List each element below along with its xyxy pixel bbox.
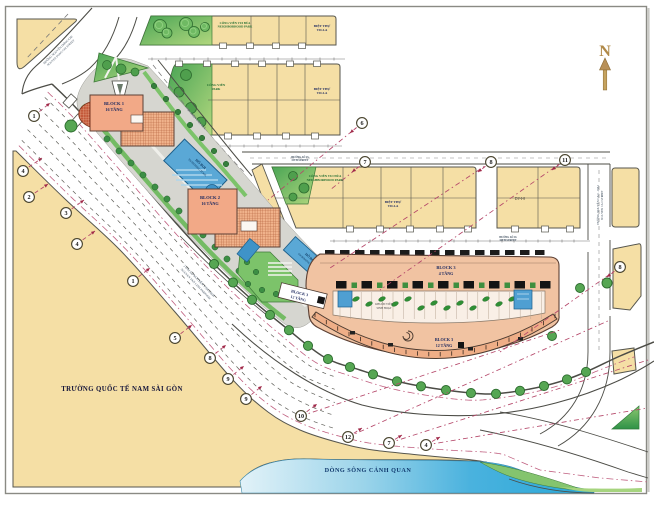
svg-text:9: 9 xyxy=(226,376,229,383)
svg-text:DV-I-8: DV-I-8 xyxy=(515,197,525,201)
svg-text:5: 5 xyxy=(173,335,176,342)
svg-text:KHUÔN VIÊN: KHUÔN VIÊN xyxy=(375,303,392,306)
svg-text:VILLA: VILLA xyxy=(388,204,399,208)
svg-text:10: 10 xyxy=(298,413,304,420)
svg-text:PARK: PARK xyxy=(212,87,221,91)
svg-text:6: 6 xyxy=(360,120,363,127)
svg-text:3: 3 xyxy=(64,210,67,217)
svg-text:8: 8 xyxy=(489,159,492,166)
svg-text:4: 4 xyxy=(75,241,78,248)
svg-text:NGUYEN CAO STREET: NGUYEN CAO STREET xyxy=(601,190,604,220)
svg-text:9: 9 xyxy=(244,396,247,403)
svg-text:7: 7 xyxy=(363,159,366,166)
svg-text:ĐƯỜNG NGUYỄN CAO - HAI: ĐƯỜNG NGUYỄN CAO - HAI xyxy=(595,185,600,224)
svg-text:11: 11 xyxy=(562,157,568,164)
svg-text:16 TẦNG: 16 TẦNG xyxy=(201,201,219,206)
svg-text:7: 7 xyxy=(387,440,390,447)
svg-text:BLOCK 3: BLOCK 3 xyxy=(436,265,456,270)
svg-text:VILLA: VILLA xyxy=(317,28,328,32)
svg-text:1: 1 xyxy=(32,113,35,120)
svg-text:SINH HOẠT: SINH HOẠT xyxy=(377,307,392,310)
svg-text:12 TẦNG: 12 TẦNG xyxy=(436,343,452,348)
svg-text:VILLA: VILLA xyxy=(317,91,328,95)
svg-text:16 TẦNG: 16 TẦNG xyxy=(105,107,123,112)
svg-text:2: 2 xyxy=(27,194,30,201)
svg-text:NEIGHBORHOOD PARK: NEIGHBORHOOD PARK xyxy=(307,178,344,182)
svg-text:BLOCK 1: BLOCK 1 xyxy=(104,101,125,106)
svg-text:1: 1 xyxy=(131,278,134,285)
svg-text:4: 4 xyxy=(21,168,24,175)
svg-text:12: 12 xyxy=(345,434,351,441)
svg-text:BLOCK 3: BLOCK 3 xyxy=(435,337,453,342)
svg-text:TRƯỜNG QUỐC TẾ NAM SÀI GÒN: TRƯỜNG QUỐC TẾ NAM SÀI GÒN xyxy=(61,385,183,393)
svg-text:4 TẦNG: 4 TẦNG xyxy=(439,271,453,276)
svg-text:DÒNG SÔNG CẢNH QUAN: DÒNG SÔNG CẢNH QUAN xyxy=(325,466,412,474)
svg-text:N: N xyxy=(599,43,611,60)
svg-text:8: 8 xyxy=(618,264,621,271)
svg-text:NEIGHBORHOOD PARK: NEIGHBORHOOD PARK xyxy=(218,25,253,29)
svg-text:8: 8 xyxy=(208,355,211,362)
svg-text:16TH STREET: 16TH STREET xyxy=(499,239,516,242)
svg-text:15TH STREET: 15TH STREET xyxy=(291,159,308,162)
svg-text:4: 4 xyxy=(424,442,427,449)
svg-text:BLOCK 2: BLOCK 2 xyxy=(200,195,221,200)
